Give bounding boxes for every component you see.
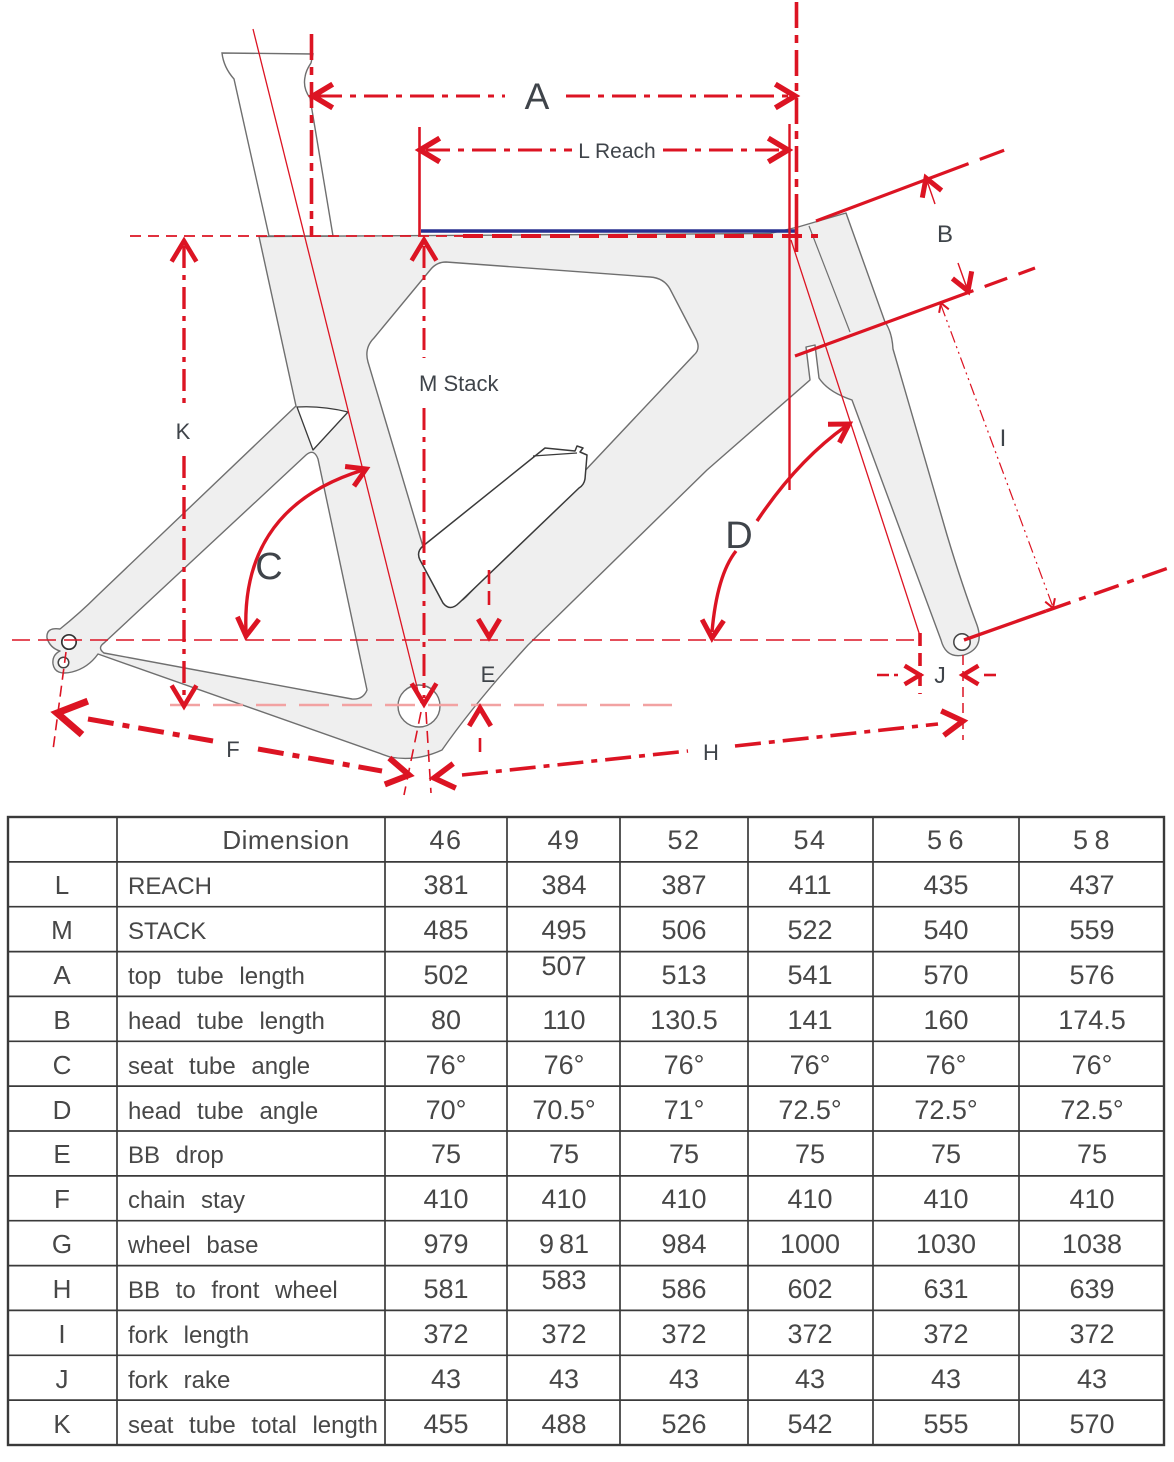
svg-text:head tube length: head tube length bbox=[128, 1008, 325, 1035]
svg-text:A: A bbox=[53, 960, 71, 990]
svg-text:H: H bbox=[703, 740, 719, 765]
svg-text:I: I bbox=[1000, 425, 1007, 452]
svg-text:506: 506 bbox=[661, 915, 706, 945]
svg-text:B: B bbox=[53, 1005, 70, 1035]
svg-text:49: 49 bbox=[547, 825, 580, 855]
svg-text:372: 372 bbox=[423, 1319, 468, 1349]
svg-text:372: 372 bbox=[1069, 1319, 1114, 1349]
svg-text:C: C bbox=[53, 1050, 72, 1080]
svg-text:J: J bbox=[934, 662, 946, 688]
svg-text:H: H bbox=[53, 1274, 72, 1304]
svg-text:K: K bbox=[176, 419, 191, 444]
svg-text:M: M bbox=[51, 915, 73, 945]
svg-text:STACK: STACK bbox=[128, 918, 206, 945]
svg-text:110: 110 bbox=[542, 1005, 585, 1035]
svg-text:76°: 76° bbox=[544, 1050, 585, 1080]
svg-text:540: 540 bbox=[923, 915, 968, 945]
svg-text:seat tube angle: seat tube angle bbox=[128, 1053, 310, 1080]
svg-text:75: 75 bbox=[431, 1139, 461, 1169]
svg-text:76°: 76° bbox=[790, 1050, 831, 1080]
svg-text:387: 387 bbox=[661, 870, 706, 900]
svg-text:522: 522 bbox=[787, 915, 832, 945]
svg-text:513: 513 bbox=[661, 960, 706, 990]
svg-text:130.5: 130.5 bbox=[650, 1005, 718, 1035]
svg-text:570: 570 bbox=[1069, 1409, 1114, 1439]
svg-text:631: 631 bbox=[923, 1274, 968, 1304]
svg-text:586: 586 bbox=[661, 1274, 706, 1304]
svg-text:52: 52 bbox=[667, 825, 700, 855]
svg-text:chain stay: chain stay bbox=[128, 1187, 245, 1214]
svg-text:455: 455 bbox=[423, 1409, 468, 1439]
svg-text:D: D bbox=[53, 1095, 72, 1125]
svg-text:L Reach: L Reach bbox=[578, 140, 655, 163]
svg-text:542: 542 bbox=[787, 1409, 832, 1439]
svg-text:141: 141 bbox=[787, 1005, 832, 1035]
svg-text:head tube angle: head tube angle bbox=[128, 1098, 318, 1125]
svg-text:160: 160 bbox=[923, 1005, 968, 1035]
svg-text:410: 410 bbox=[423, 1184, 468, 1214]
svg-text:G: G bbox=[52, 1229, 72, 1259]
svg-text:70.5°: 70.5° bbox=[532, 1095, 595, 1125]
svg-text:372: 372 bbox=[923, 1319, 968, 1349]
svg-text:372: 372 bbox=[661, 1319, 706, 1349]
svg-text:71°: 71° bbox=[664, 1095, 705, 1125]
svg-text:583: 583 bbox=[541, 1265, 586, 1295]
svg-text:43: 43 bbox=[431, 1364, 461, 1394]
svg-text:fork length: fork length bbox=[128, 1322, 249, 1349]
svg-text:A: A bbox=[525, 76, 550, 117]
svg-text:602: 602 bbox=[787, 1274, 832, 1304]
svg-text:seat tube total length: seat tube total length bbox=[128, 1412, 378, 1439]
svg-text:435: 435 bbox=[923, 870, 968, 900]
svg-text:L: L bbox=[55, 870, 69, 900]
svg-text:REACH: REACH bbox=[128, 873, 212, 900]
svg-text:559: 559 bbox=[1069, 915, 1114, 945]
svg-text:56: 56 bbox=[927, 825, 965, 855]
svg-text:72.5°: 72.5° bbox=[914, 1095, 977, 1125]
svg-text:E: E bbox=[481, 662, 496, 687]
svg-text:70°: 70° bbox=[426, 1095, 467, 1125]
svg-text:BB to front wheel: BB to front wheel bbox=[128, 1277, 338, 1304]
svg-text:437: 437 bbox=[1069, 870, 1114, 900]
svg-text:E: E bbox=[53, 1139, 70, 1169]
svg-text:75: 75 bbox=[549, 1139, 579, 1169]
svg-text:I: I bbox=[58, 1319, 65, 1349]
svg-text:75: 75 bbox=[795, 1139, 825, 1169]
svg-text:75: 75 bbox=[931, 1139, 961, 1169]
svg-text:fork rake: fork rake bbox=[128, 1367, 230, 1394]
svg-text:410: 410 bbox=[661, 1184, 706, 1214]
svg-text:1000: 1000 bbox=[780, 1229, 840, 1259]
svg-text:M Stack: M Stack bbox=[419, 371, 499, 396]
svg-text:F: F bbox=[54, 1184, 70, 1214]
svg-text:410: 410 bbox=[923, 1184, 968, 1214]
svg-text:43: 43 bbox=[1077, 1364, 1107, 1394]
svg-text:J: J bbox=[56, 1364, 69, 1394]
svg-text:D: D bbox=[725, 515, 752, 557]
svg-text:410: 410 bbox=[1069, 1184, 1114, 1214]
svg-text:43: 43 bbox=[669, 1364, 699, 1394]
svg-text:576: 576 bbox=[1069, 960, 1114, 990]
svg-text:1038: 1038 bbox=[1062, 1229, 1122, 1259]
svg-text:B: B bbox=[937, 221, 953, 248]
svg-text:981: 981 bbox=[539, 1229, 589, 1259]
svg-text:507: 507 bbox=[541, 951, 586, 981]
svg-text:75: 75 bbox=[1077, 1139, 1107, 1169]
svg-text:570: 570 bbox=[923, 960, 968, 990]
svg-text:485: 485 bbox=[423, 915, 468, 945]
svg-text:411: 411 bbox=[788, 870, 831, 900]
svg-text:75: 75 bbox=[669, 1139, 699, 1169]
svg-text:46: 46 bbox=[429, 825, 462, 855]
svg-text:526: 526 bbox=[661, 1409, 706, 1439]
svg-text:54: 54 bbox=[793, 825, 826, 855]
svg-text:639: 639 bbox=[1069, 1274, 1114, 1304]
svg-text:BB drop: BB drop bbox=[128, 1142, 224, 1169]
svg-text:502: 502 bbox=[423, 960, 468, 990]
svg-text:76°: 76° bbox=[926, 1050, 967, 1080]
svg-text:555: 555 bbox=[923, 1409, 968, 1439]
svg-text:43: 43 bbox=[549, 1364, 579, 1394]
svg-text:410: 410 bbox=[787, 1184, 832, 1214]
svg-text:581: 581 bbox=[423, 1274, 468, 1304]
svg-text:984: 984 bbox=[661, 1229, 706, 1259]
svg-text:43: 43 bbox=[931, 1364, 961, 1394]
svg-text:381: 381 bbox=[423, 870, 468, 900]
svg-text:1030: 1030 bbox=[916, 1229, 976, 1259]
svg-text:72.5°: 72.5° bbox=[1060, 1095, 1123, 1125]
svg-text:541: 541 bbox=[787, 960, 832, 990]
svg-text:C: C bbox=[255, 546, 282, 588]
svg-text:495: 495 bbox=[541, 915, 586, 945]
svg-text:wheel base: wheel base bbox=[127, 1232, 258, 1259]
svg-text:174.5: 174.5 bbox=[1058, 1005, 1126, 1035]
svg-text:372: 372 bbox=[541, 1319, 586, 1349]
svg-text:372: 372 bbox=[787, 1319, 832, 1349]
svg-text:top tube length: top tube length bbox=[128, 963, 305, 990]
svg-text:76°: 76° bbox=[664, 1050, 705, 1080]
svg-text:76°: 76° bbox=[1072, 1050, 1113, 1080]
svg-text:384: 384 bbox=[541, 870, 586, 900]
svg-text:80: 80 bbox=[431, 1005, 461, 1035]
svg-text:410: 410 bbox=[541, 1184, 586, 1214]
svg-text:Dimension: Dimension bbox=[222, 825, 349, 855]
svg-text:58: 58 bbox=[1073, 825, 1111, 855]
svg-text:488: 488 bbox=[541, 1409, 586, 1439]
svg-text:F: F bbox=[226, 737, 239, 762]
svg-text:43: 43 bbox=[795, 1364, 825, 1394]
svg-text:979: 979 bbox=[423, 1229, 468, 1259]
svg-text:76°: 76° bbox=[426, 1050, 467, 1080]
svg-text:72.5°: 72.5° bbox=[778, 1095, 841, 1125]
svg-text:K: K bbox=[53, 1409, 71, 1439]
